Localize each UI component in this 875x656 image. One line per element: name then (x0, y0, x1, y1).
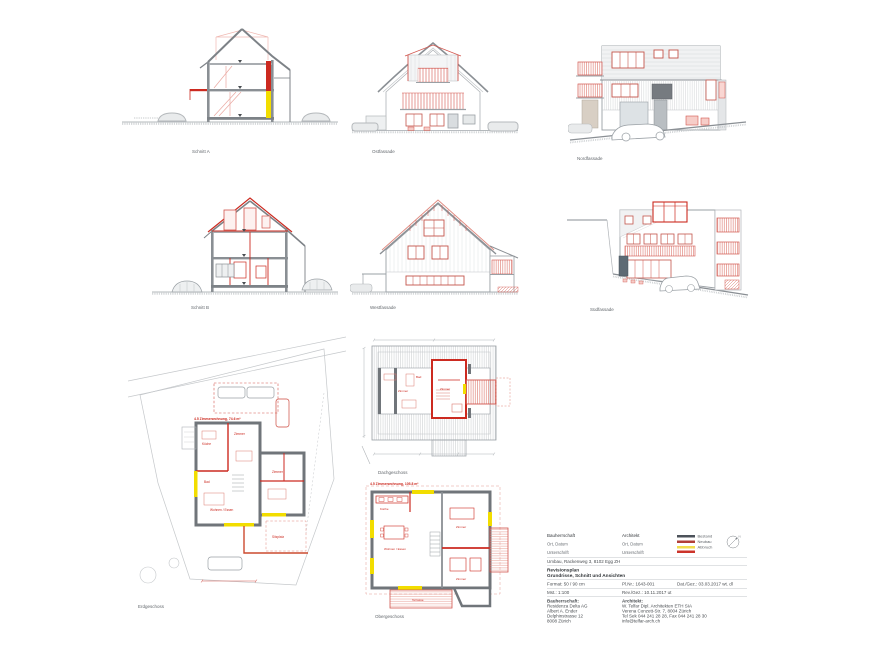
drawing-dachgeschoss: Zimmer Bad Zimmer (360, 334, 512, 464)
svg-text:Zimmer: Zimmer (234, 432, 246, 436)
revision-date: Rev./Gez.: 10.11.2017 ut (622, 590, 671, 595)
signature-client: Bauherrschaft Ort, Datum Unterschrift (547, 533, 622, 557)
signature-client-title: Bauherrschaft (547, 533, 622, 538)
legend-swatch-existing (677, 535, 695, 538)
flat-label: 4.5 Zimmerwohnung, 74.6 m² (194, 417, 241, 421)
right-balcony-column (715, 210, 741, 290)
right-dormer (463, 378, 510, 406)
legend-item-3 (677, 551, 723, 554)
caption-ostfassade: Ostfassade (372, 144, 418, 162)
upper-balcony (416, 68, 450, 83)
drawing-suedfassade (565, 182, 750, 307)
red-hatch-base (498, 287, 518, 292)
signature-architect-date: Ort, Datum (622, 542, 677, 547)
caption-obergeschoss: Obergeschoss (375, 609, 433, 627)
red-hatch-patch (725, 280, 739, 289)
signature-row: Bauherrschaft Ort, Datum Unterschrift Ar… (547, 531, 747, 557)
client-contact: Bauherrschaft: Residenza Delta AG Albert… (547, 599, 622, 624)
window (216, 264, 234, 277)
signature-client-sign: Unterschrift (547, 550, 622, 555)
drawing-westfassade (350, 188, 520, 306)
red-dormer (653, 202, 687, 222)
svg-text:Zimmer: Zimmer (456, 525, 466, 529)
svg-text:Zimmer: Zimmer (456, 577, 466, 581)
trees (140, 558, 179, 583)
plan-title: Grundrisse, Schnitt und Ansichten (547, 573, 747, 579)
compass-icon: N (723, 533, 743, 553)
project-address: Umbau, Rackenweg 3, 8102 Egg ZH (547, 559, 620, 564)
svg-text:Bad: Bad (204, 480, 210, 484)
new-red-roof (208, 198, 292, 232)
svg-text:Zimmer: Zimmer (398, 389, 408, 393)
road-lines (128, 337, 346, 397)
architect-email: info@telfar-arch.ch (622, 619, 707, 624)
svg-text:Zimmer: Zimmer (440, 387, 450, 391)
format-row: Format: 50 / 90 cm Pl.Nr.: 1643-001 Dat.… (547, 580, 747, 589)
project-row: Umbau, Rackenweg 3, 8102 Egg ZH (547, 557, 747, 566)
svg-text:Terrasse: Terrasse (412, 598, 424, 602)
architect-contact: Architekt: W. Telfar Dipl. Architekten E… (622, 599, 707, 624)
car (350, 284, 372, 292)
title-block: Bauherrschaft Ort, Datum Unterschrift Ar… (547, 531, 747, 635)
signature-architect: Architekt Ort, Datum Unterschrift (622, 533, 677, 557)
legend-swatch-demolition (677, 546, 695, 549)
car-bottom (201, 557, 257, 583)
caption-nordfassade: Nordfassade (577, 151, 628, 169)
section-structure (200, 29, 290, 122)
drawing-schnitt-b (150, 186, 340, 308)
plan-sheet: Schnitt A (0, 0, 875, 656)
compass: N (723, 533, 745, 557)
left-annex-balconies (576, 62, 604, 128)
car (660, 276, 700, 293)
contacts-row: Bauherrschaft: Residenza Delta AG Albert… (547, 597, 747, 624)
svg-text:Zimmer: Zimmer (272, 470, 284, 474)
svg-text:Wohnen / Essen: Wohnen / Essen (384, 547, 406, 551)
scale-row: Mst.: 1:100 Rev./Gez.: 10.11.2017 ut (547, 588, 747, 597)
color-legend: Bestand Neubau Abbruch (677, 533, 723, 557)
balcony-railing (625, 246, 695, 256)
client-city: 8008 Zürich (547, 619, 622, 624)
svg-text:N: N (739, 535, 741, 539)
drawing-erdgeschoss: 4.5 Zimmerwohnung, 74.6 m² Küche Zimmer … (128, 333, 346, 601)
caption-westfassade: Westfassade (370, 300, 422, 318)
svg-text:Bad: Bad (416, 375, 422, 379)
legend-swatch-red2 (677, 551, 695, 554)
signature-client-date: Ort, Datum (547, 542, 622, 547)
legend-item-0: Bestand (677, 534, 723, 539)
caption-schnitt-b: Schnitt B (191, 300, 227, 318)
level-markers (238, 60, 242, 117)
drawing-nordfassade (568, 24, 748, 152)
caption-suedfassade: Südfassade (590, 302, 638, 320)
svg-text:Küche: Küche (202, 442, 211, 446)
flat-label: 4.5 Zimmerwohnung, 105.8 m² (370, 482, 419, 486)
svg-text:Sitzplatz: Sitzplatz (272, 535, 284, 539)
plan-title-row: Revisionsplan Grundrisse, Schnitt und An… (547, 566, 747, 580)
signature-architect-title: Architekt (622, 533, 677, 538)
drawing-ostfassade (350, 30, 520, 145)
svg-text:Küche: Küche (380, 507, 389, 511)
signature-architect-sign: Unterschrift (622, 550, 677, 555)
date-drawn: Dat./Gez.: 03.03.2017 wt. dl (677, 582, 733, 587)
caption-schnitt-a: Schnitt A (192, 144, 228, 162)
legend-swatch-new (677, 541, 695, 544)
caption-erdgeschoss: Erdgeschoss (138, 599, 190, 617)
legend-item-2: Abbruch (677, 545, 723, 550)
svg-text:Wohnen / Essen: Wohnen / Essen (210, 508, 234, 512)
drawing-obergeschoss: 4.5 Zimmerwohnung, 105.8 m² Küche Wohnen… (358, 478, 512, 610)
plan-number: Pl.Nr.: 1643-001 (622, 582, 677, 587)
drawing-schnitt-a (120, 20, 340, 145)
boundary-fragment (362, 446, 370, 464)
scale-value: Mst.: 1:100 (547, 590, 622, 595)
format-value: Format: 50 / 90 cm (547, 582, 622, 587)
legend-item-1: Neubau (677, 540, 723, 545)
building-walls (182, 423, 304, 525)
